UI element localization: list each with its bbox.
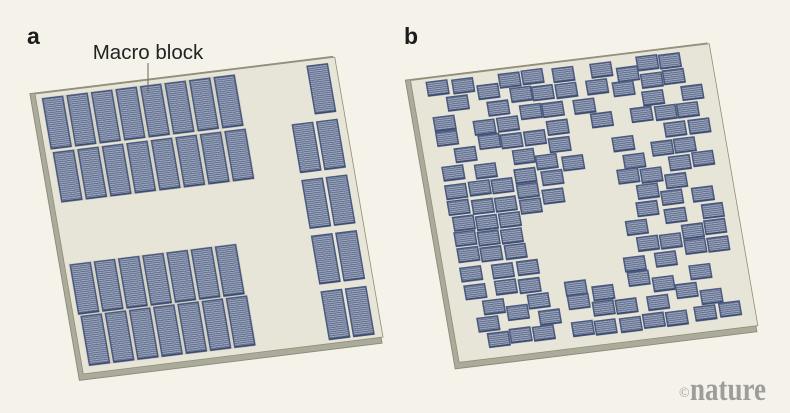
svg-text:©: ©: [679, 386, 690, 401]
svg-text:Macro block: Macro block: [93, 41, 204, 64]
svg-text:nature: nature: [690, 372, 766, 408]
svg-text:b: b: [404, 23, 418, 49]
svg-text:a: a: [27, 23, 40, 49]
